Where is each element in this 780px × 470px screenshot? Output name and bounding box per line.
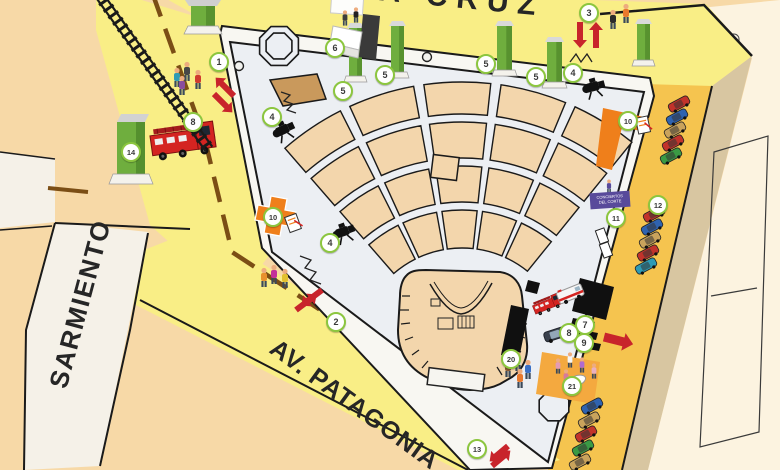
map-marker-10: 10: [618, 111, 638, 131]
map-marker-1: 1: [209, 52, 229, 72]
map-marker-4: 4: [320, 233, 340, 253]
map-marker-5: 5: [476, 54, 496, 74]
map-marker-5: 5: [375, 65, 395, 85]
map-marker-13: 13: [467, 439, 487, 459]
map-marker-8: 8: [183, 112, 203, 132]
map-marker-20: 20: [501, 349, 521, 369]
map-marker-4: 4: [563, 63, 583, 83]
tree: [423, 53, 432, 62]
street-west: [0, 152, 55, 228]
map-marker-3: 3: [579, 3, 599, 23]
mixer-booth: [431, 154, 460, 180]
map-marker-9: 9: [574, 333, 594, 353]
map-marker-5: 5: [526, 67, 546, 87]
tree: [235, 62, 244, 71]
map-marker-4: 4: [262, 107, 282, 127]
map-marker-5: 5: [333, 81, 353, 101]
festival-map: SANTA CRUZ SARMIENTO AV. PATAGONIA CONCI…: [0, 0, 780, 470]
map-marker-6: 6: [325, 38, 345, 58]
map-marker-11: 11: [606, 208, 626, 228]
octagon: [266, 33, 292, 59]
map-marker-21: 21: [562, 376, 582, 396]
map-marker-14: 14: [121, 142, 141, 162]
purple-info-sign: CONCIERTOS DEL CORTE: [589, 191, 630, 210]
seating-block: [424, 82, 491, 116]
map-marker-12: 12: [648, 195, 668, 215]
seating-block: [430, 122, 487, 160]
map-marker-10: 10: [263, 207, 283, 227]
map-marker-2: 2: [326, 312, 346, 332]
seating-block: [442, 210, 477, 249]
